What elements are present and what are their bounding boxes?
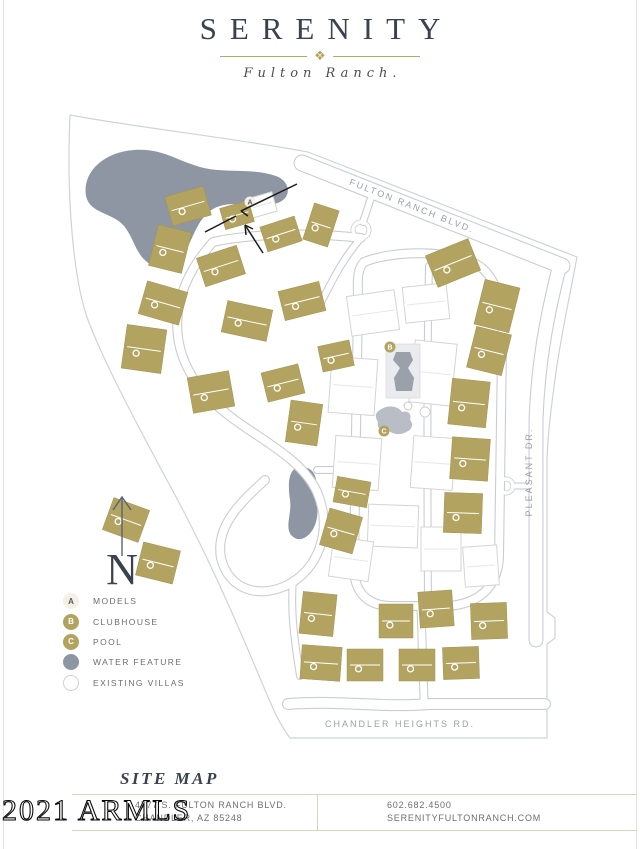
street-label-pleasant: PLEASANT DR.: [524, 428, 534, 517]
courtyard-circle: [420, 407, 430, 417]
marker-b-letter: B: [387, 345, 392, 352]
footer-rule-bottom: [72, 830, 637, 831]
ornament-row: ❖: [220, 49, 420, 63]
header: SERENITY ❖ Fulton Ranch.: [0, 12, 640, 81]
brand-subtitle: Fulton Ranch.: [0, 66, 640, 81]
website-url: SERENITYFULTONRANCH.COM: [387, 812, 541, 825]
legend-item-pool: C POOL: [63, 632, 185, 652]
clubhouse-marker-icon: B: [63, 614, 79, 630]
legend-item-clubhouse: B CLUBHOUSE: [63, 611, 185, 631]
marker-clubhouse: B: [385, 342, 396, 353]
road-surface: [288, 703, 545, 705]
models-marker-icon: A: [63, 593, 79, 609]
ornament-icon: ❖: [307, 49, 333, 63]
legend-item-models: A MODELS: [63, 591, 185, 611]
legend-label: MODELS: [93, 596, 137, 606]
watermark: 2021 ARMLS: [2, 794, 191, 828]
legend-item-water-feature: WATER FEATURE: [63, 652, 185, 672]
marker-c-letter: C: [381, 429, 386, 436]
site-map-graphic: A B C FULTON RANCH BLVD. PLEASANT DR. CH…: [0, 0, 640, 849]
legend-label: WATER FEATURE: [93, 657, 182, 667]
legend-label: POOL: [93, 637, 122, 647]
pool-marker-icon: C: [63, 634, 79, 650]
footer-contact: 602.682.4500 SERENITYFULTONRANCH.COM: [387, 799, 541, 825]
legend: A MODELS B CLUBHOUSE C POOL WATER FEATUR…: [63, 591, 185, 693]
brand-title: SERENITY: [0, 12, 640, 46]
water-feature-marker-icon: [63, 654, 79, 670]
site-map-title: SITE MAP: [120, 769, 219, 789]
footer-divider: [317, 794, 318, 830]
legend-label: EXISTING VILLAS: [93, 678, 185, 688]
marker-pool: C: [379, 426, 390, 437]
existing-villas-marker-icon: [63, 675, 79, 691]
legend-item-existing-villas: EXISTING VILLAS: [63, 673, 185, 693]
street-label-chandler: CHANDLER HEIGHTS RD.: [325, 719, 475, 729]
road-surface: [363, 198, 371, 222]
legend-label: CLUBHOUSE: [93, 617, 159, 627]
site-map-page: A B C FULTON RANCH BLVD. PLEASANT DR. CH…: [0, 0, 640, 849]
north-label: N: [106, 545, 138, 594]
phone-number: 602.682.4500: [387, 799, 541, 812]
spa-circle: [404, 402, 412, 410]
